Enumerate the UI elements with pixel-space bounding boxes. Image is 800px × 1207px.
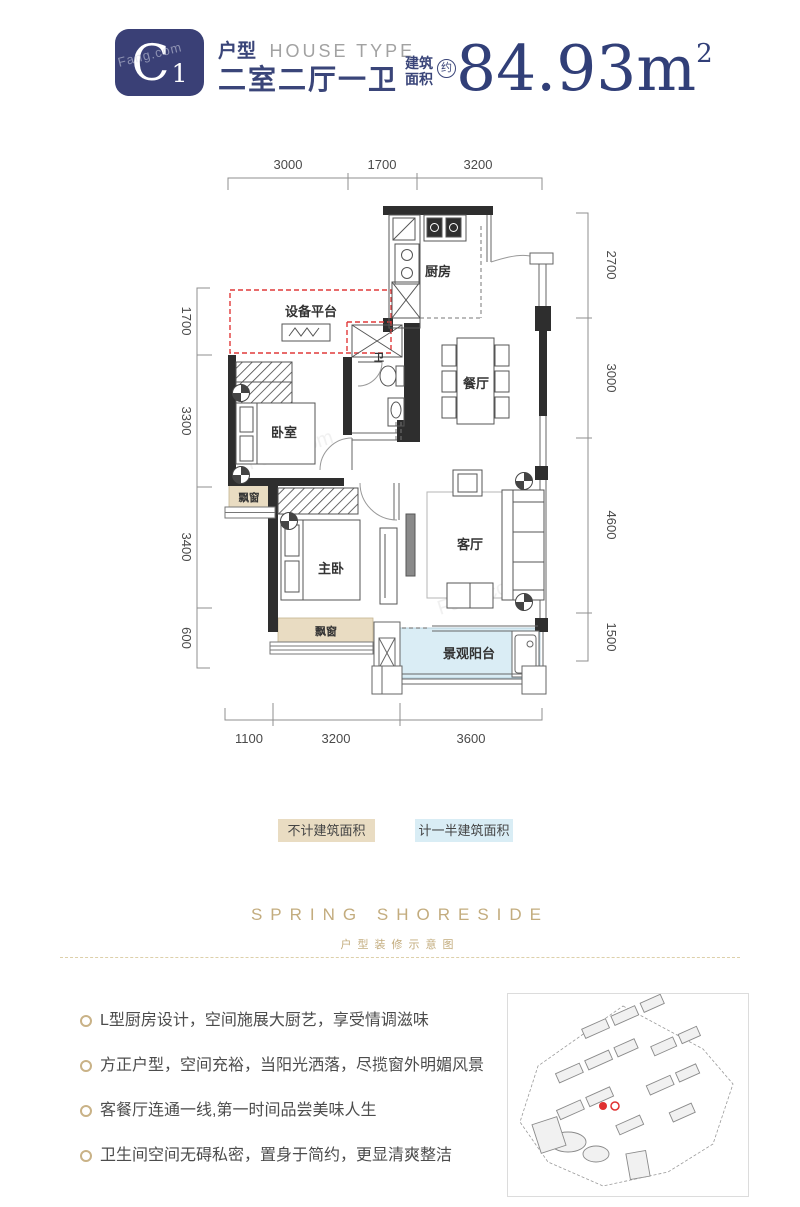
feature-item: 客餐厅连通一线,第一时间品尝美味人生 [80, 1100, 500, 1122]
label-bedroom: 卧室 [271, 425, 297, 440]
bullet-icon [80, 1060, 92, 1072]
unit-location-ring [611, 1102, 619, 1110]
label-dining: 餐厅 [462, 376, 489, 391]
bathroom-fixtures [352, 325, 404, 426]
feature-text: 方正户型，空间充裕，当阳光洒落，尽揽窗外明媚风景 [100, 1055, 484, 1077]
equipment-platform-outline [230, 290, 391, 353]
dim-right-3: 4600 [604, 511, 619, 540]
feature-item: 方正户型，空间充裕，当阳光洒落，尽揽窗外明媚风景 [80, 1055, 500, 1077]
label-balcony: 景观阳台 [443, 646, 495, 661]
bay-window-left-glass [225, 507, 275, 518]
feature-item: L型厨房设计，空间施展大厨艺，享受情调滋味 [80, 1010, 500, 1032]
bullet-icon [80, 1150, 92, 1162]
dim-right-1: 2700 [604, 251, 619, 280]
dashed-divider [60, 957, 740, 958]
project-subtitle: 户型装修示意图 [0, 936, 800, 952]
living-furniture [427, 470, 544, 608]
area-number: 84.93m [456, 32, 696, 105]
feature-text: 卫生间空间无碍私密，置身于简约，更显清爽整洁 [100, 1145, 452, 1167]
layout-name: 二室二厅一卫 [218, 58, 398, 98]
approx-circle: 约 [437, 59, 456, 78]
ac-unit-icon [282, 324, 330, 341]
label-master-bedroom: 主卧 [318, 561, 344, 576]
master-bed [281, 520, 360, 600]
dim-bottom-3: 3600 [457, 731, 486, 746]
dim-left-1: 1700 [179, 307, 194, 336]
dim-top-1: 3000 [274, 157, 303, 172]
area-label-line2: 面积 [405, 71, 433, 87]
area-label-line1: 建筑 [405, 55, 433, 71]
label-bay-window-bottom: 飘窗 [315, 624, 337, 638]
floorplan-page: Fang.com C 1 户型 HOUSE TYPE 二室二厅一卫 建筑 面积 … [0, 0, 800, 1207]
dim-left-2: 3300 [179, 407, 194, 436]
area-value: 84.93m2 [456, 14, 713, 109]
label-kitchen: 厨房 [425, 264, 451, 279]
dim-bottom-2: 3200 [322, 731, 351, 746]
unit-code-badge: Fang.com C 1 [115, 29, 204, 96]
tv-console [380, 514, 415, 604]
legend-excluded-area: 不计建筑面积 [278, 819, 375, 842]
bullet-icon [80, 1105, 92, 1117]
dim-top-3: 3200 [464, 157, 493, 172]
dim-right-2: 3000 [604, 364, 619, 393]
bullet-icon [80, 1015, 92, 1027]
feature-list: L型厨房设计，空间施展大厨艺，享受情调滋味 方正户型，空间充裕，当阳光洒落，尽揽… [80, 1010, 500, 1190]
site-buildings [530, 993, 728, 1180]
label-bay-window-left: 飘窗 [239, 491, 260, 504]
project-title: SPRING SHORESIDE [0, 905, 800, 925]
unit-location-dot [599, 1102, 607, 1110]
dim-left-3: 3400 [179, 533, 194, 562]
dim-bottom-1: 1100 [235, 731, 263, 746]
area-label: 建筑 面积 [405, 55, 433, 87]
floorplan-drawing: Fang.com Fang.com 3000 1700 3200 2700 30… [150, 140, 630, 765]
dim-left-4: 600 [179, 627, 194, 649]
area-exponent: 2 [696, 39, 713, 69]
feature-text: 客餐厅连通一线,第一时间品尝美味人生 [100, 1100, 376, 1122]
dim-right-4: 1500 [604, 623, 619, 652]
feature-item: 卫生间空间无碍私密，置身于简约，更显清爽整洁 [80, 1145, 500, 1167]
label-living: 客厅 [457, 537, 483, 552]
label-equipment-platform: 设备平台 [285, 304, 337, 319]
entry-door [487, 215, 553, 306]
label-bathroom: 卫 [374, 352, 384, 364]
feature-text: L型厨房设计，空间施展大厨艺，享受情调滋味 [100, 1010, 429, 1032]
unit-number: 1 [172, 61, 188, 86]
bay-window-bottom-glass [270, 642, 373, 654]
dim-top-2: 1700 [368, 157, 397, 172]
site-plan-thumbnail [507, 993, 749, 1197]
legend-half-area: 计一半建筑面积 [415, 819, 513, 842]
